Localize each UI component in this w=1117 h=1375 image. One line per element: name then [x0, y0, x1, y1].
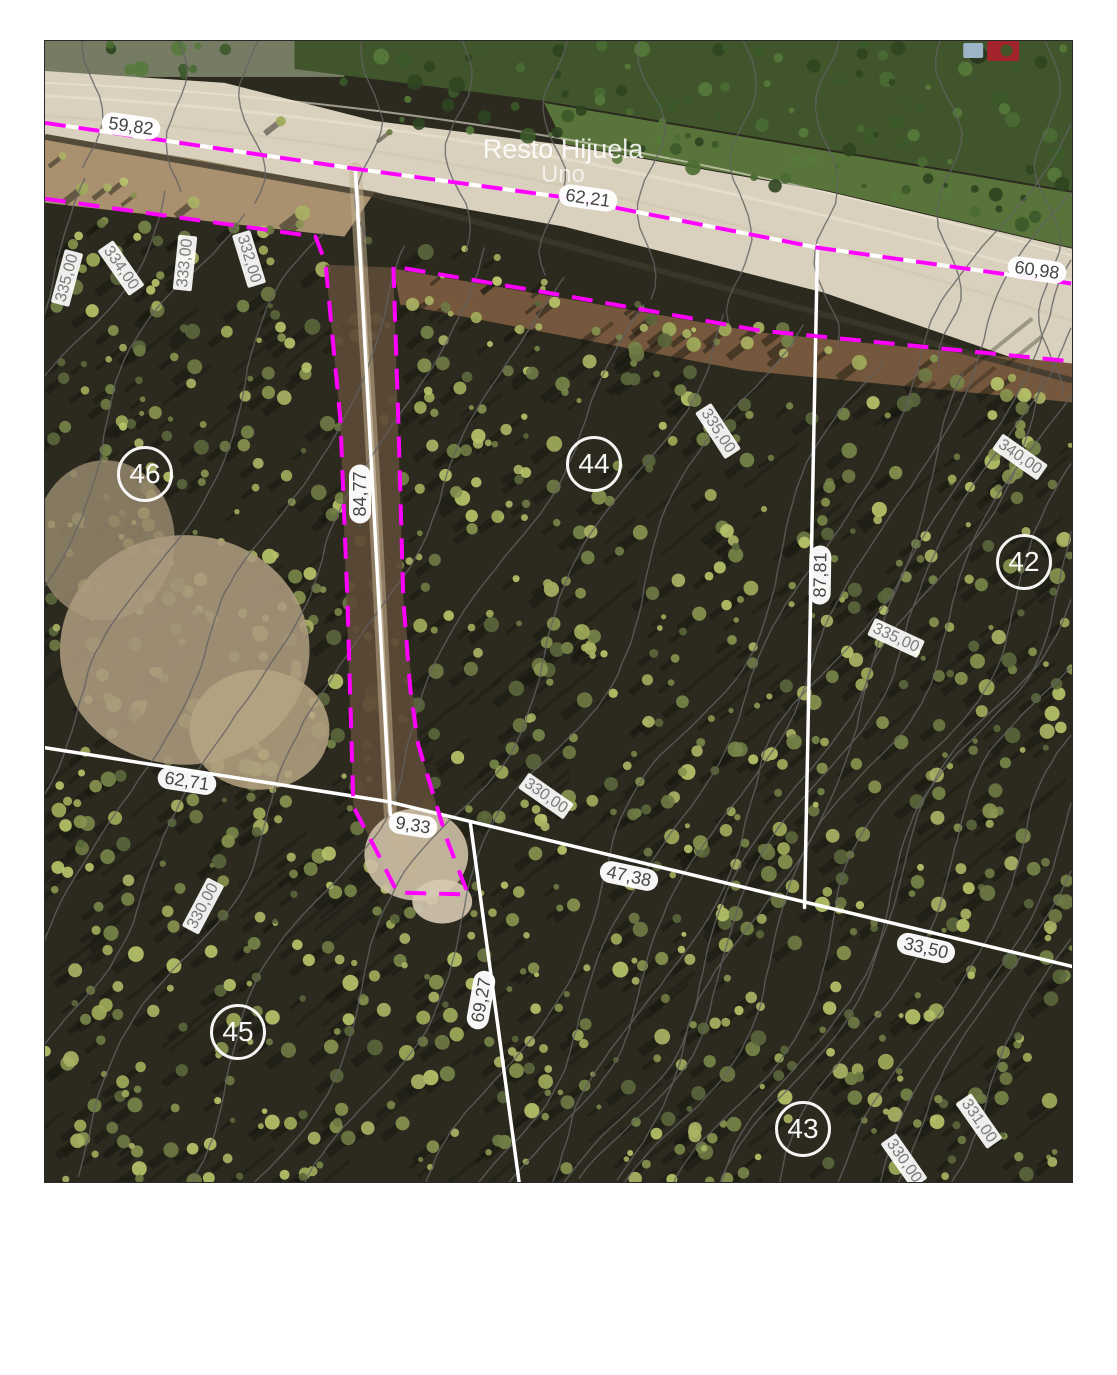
contour-elevation-label: 333,00 [173, 235, 198, 292]
contour-elevation-label: 335,00 [51, 249, 84, 307]
distance-measurement-label: 60,98 [1006, 255, 1068, 285]
parcel-number-badge: 44 [566, 436, 622, 492]
distance-measurement-label: 62,71 [156, 766, 218, 797]
parcel-number-badge: 46 [117, 446, 173, 502]
distance-measurement-label: 33,50 [895, 931, 957, 966]
distance-measurement-label: 69,27 [465, 969, 497, 1031]
distance-measurement-label: 87,81 [808, 545, 831, 604]
distance-measurement-label: 9,33 [387, 810, 439, 839]
area-name-line1: Resto Hijuela [483, 136, 644, 162]
contour-elevation-label: 340,00 [992, 433, 1048, 480]
contour-elevation-label: 334,00 [97, 240, 144, 296]
contour-elevation-label: 330,00 [880, 1133, 927, 1183]
area-name-line2: Uno [483, 162, 644, 188]
contour-elevation-label: 335,00 [867, 618, 925, 658]
parcel-number-badge: 43 [775, 1101, 831, 1157]
map-labels-layer: Resto Hijuela Uno 4644424543 59,8262,216… [45, 41, 1072, 1182]
distance-measurement-label: 59,82 [100, 111, 162, 141]
contour-elevation-label: 335,00 [695, 403, 741, 459]
plan-sheet: Resto Hijuela Uno 4644424543 59,8262,216… [0, 0, 1117, 1375]
cadastral-map: Resto Hijuela Uno 4644424543 59,8262,216… [44, 40, 1073, 1183]
contour-elevation-label: 330,00 [182, 877, 225, 934]
parcel-number-badge: 42 [996, 534, 1052, 590]
area-name-label: Resto Hijuela Uno [483, 136, 644, 188]
parcel-number-badge: 45 [210, 1004, 266, 1060]
contour-elevation-label: 331,00 [955, 1093, 1002, 1149]
contour-elevation-label: 330,00 [518, 772, 574, 819]
contour-elevation-label: 332,00 [232, 230, 266, 288]
distance-measurement-label: 84,77 [349, 464, 371, 523]
distance-measurement-label: 47,38 [598, 859, 660, 893]
